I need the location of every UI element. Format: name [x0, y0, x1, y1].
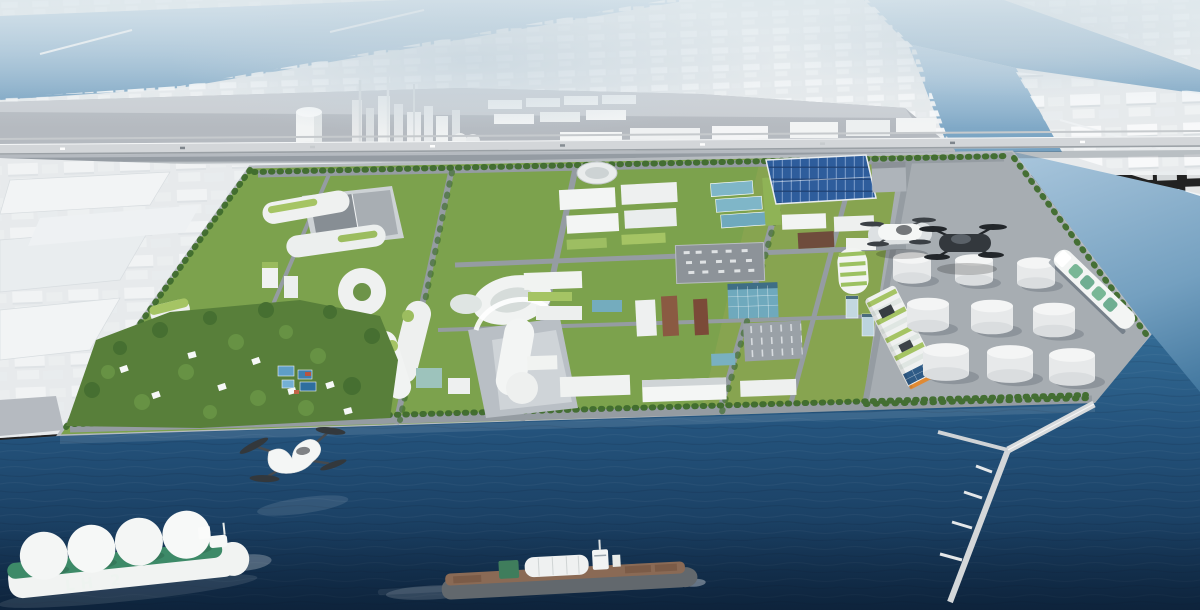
solar-roof-building [766, 155, 876, 204]
brick-building-2 [693, 299, 709, 336]
rendered-image: LH 2 [0, 0, 1200, 610]
haze-overlay [0, 0, 1200, 140]
brick-building [661, 296, 679, 337]
parking-lot [743, 321, 803, 362]
rooftop-plant-building [675, 242, 764, 283]
glass-office-cluster [710, 177, 781, 230]
striped-wave-building [836, 247, 869, 295]
port-city-rendering: LH 2 [0, 0, 1200, 610]
dome-hall [577, 162, 617, 184]
dark-shed [798, 231, 835, 249]
teal-factory [727, 282, 778, 319]
